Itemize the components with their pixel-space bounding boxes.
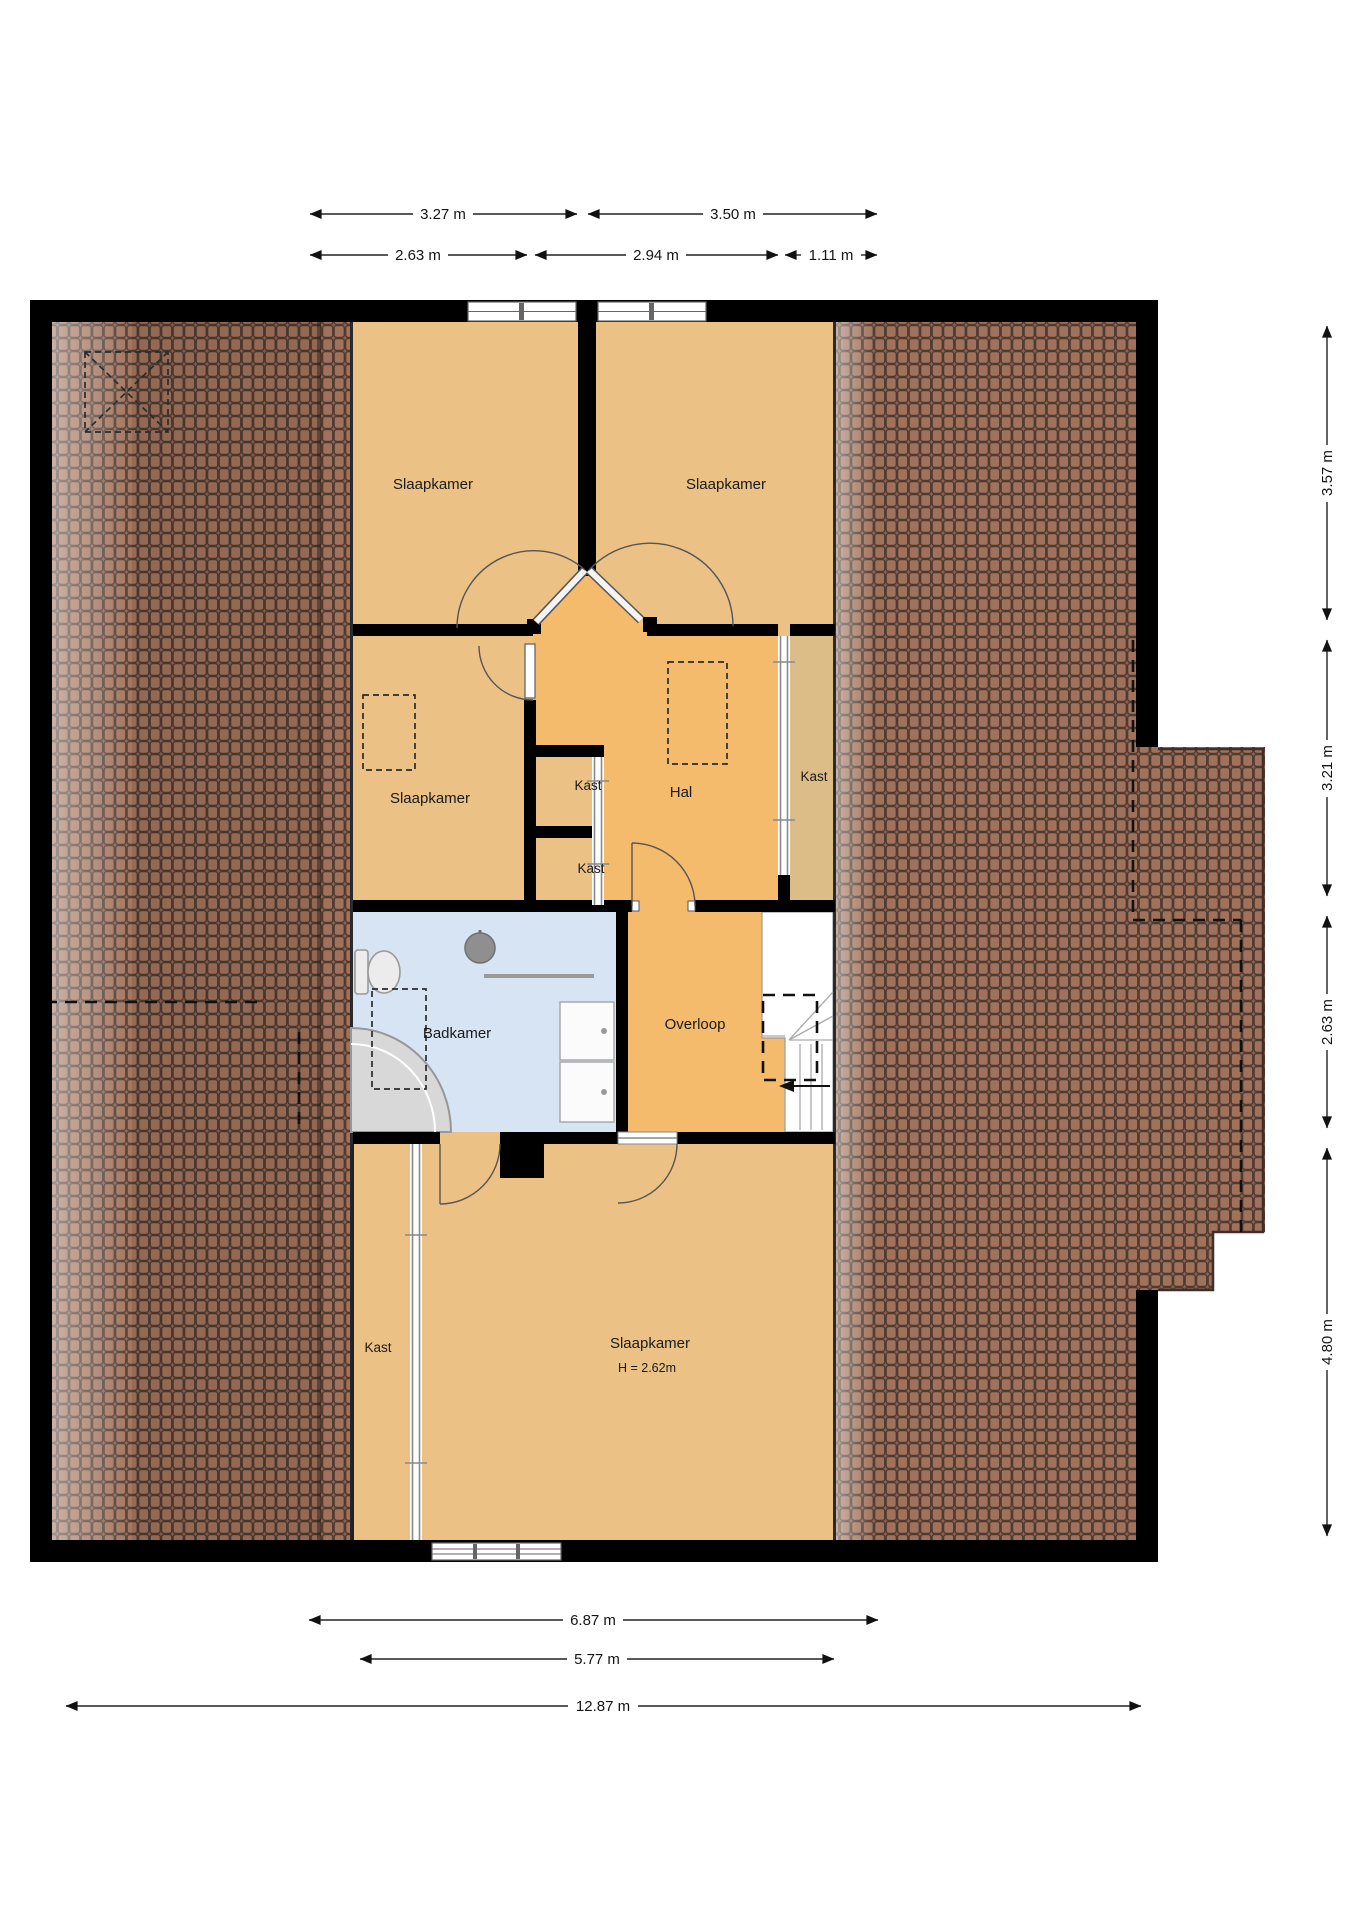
dim-label-3-27: 3.27 m [420,206,466,223]
right-roof-highlight [836,322,876,1540]
dim-top-row2-seg1: 2.63 m [310,247,527,264]
window-top-1 [468,302,576,321]
room-label-closet-lower: Kast [577,861,604,876]
dim-top-row1-seg2: 3.50 m [588,206,877,223]
wall-b-left [353,900,632,912]
wall-c-left [353,1132,440,1144]
outer-wall-top [30,300,1158,322]
dim-label-2-63-top: 2.63 m [395,247,441,264]
dim-top-row2-seg3: 1.11 m [785,247,877,264]
room-label-bedroom-bottom: Slaapkamer [610,1335,690,1352]
closet-top-wall [524,745,604,757]
wall-a-left [353,624,533,636]
left-roof-shade [132,322,317,1540]
room-label-hall: Hal [670,784,693,801]
room-note-ceiling-height: H = 2.62m [618,1361,676,1375]
right-roof-notch [1213,1232,1267,1292]
dim-label-4-80: 4.80 m [1319,1319,1336,1365]
dim-bottom-seg3: 12.87 m [66,1698,1141,1715]
bathroom-landing-wall [616,912,628,1132]
outer-wall-bottom [30,1540,1158,1562]
wall-c-stub [500,1132,544,1178]
room-label-closet-right: Kast [800,769,827,784]
dim-right-seg1: 3.57 m [1319,326,1336,620]
faucet-2-icon [601,1089,607,1095]
wall-a-right [647,624,778,636]
dim-right-seg2: 3.21 m [1319,640,1336,896]
right-roof-tiles [836,322,1136,1540]
left-roof-highlight [52,322,137,1540]
right-roof-bumpout-tiles [1136,747,1265,1290]
wall-b-right [695,900,835,912]
dim-label-2-94: 2.94 m [633,247,679,264]
dim-label-3-50: 3.50 m [710,206,756,223]
room-label-landing: Overloop [665,1016,726,1033]
closet-bottom-left-wall [351,1144,354,1540]
room-label-bathroom: Badkamer [423,1025,491,1042]
closet-right-fill [790,636,835,900]
floor-plan-drawing: Slaapkamer Slaapkamer Slaapkamer Kast Ka… [0,0,1358,1920]
outer-wall-left [30,300,52,1562]
closet-divider-wall [536,826,592,838]
dim-label-1-11: 1.11 m [809,247,854,264]
wall-a-far-right [790,624,835,636]
left-roof [45,322,351,1540]
dim-right-seg3: 2.63 m [1319,916,1336,1128]
dim-label-5-77: 5.77 m [574,1651,620,1668]
dim-top-row1-seg1: 3.27 m [310,206,577,223]
hall-glazing-end-stub [778,875,790,905]
shower-head-icon [465,933,495,963]
dim-label-3-21: 3.21 m [1319,745,1336,791]
dim-top-row2-seg2: 2.94 m [535,247,778,264]
dim-right-seg4: 4.80 m [1319,1148,1336,1536]
toilet-tank-icon [355,950,368,994]
faucet-1-icon [601,1028,607,1034]
right-roof [836,322,1267,1540]
window-top-2 [598,302,706,321]
dim-label-6-87: 6.87 m [570,1612,616,1629]
dim-bottom-seg1: 6.87 m [309,1612,878,1629]
room-label-bedroom-top-left: Slaapkamer [393,476,473,493]
room-label-bedroom-middle: Slaapkamer [390,790,470,807]
room-label-bedroom-top-right: Slaapkamer [686,476,766,493]
wall-c-right [677,1132,835,1144]
left-roof-seam [317,322,321,1540]
window-wall-c [618,1132,677,1144]
dim-label-3-57: 3.57 m [1319,450,1336,496]
dim-label-12-87: 12.87 m [576,1698,630,1715]
bedroom-divider-wall [578,322,596,565]
closet-left-wall [524,700,536,905]
window-bottom [432,1543,561,1560]
door-hinge-block-right [643,617,657,632]
room-label-closet-upper: Kast [574,778,601,793]
floor-plan-page: Slaapkamer Slaapkamer Slaapkamer Kast Ka… [0,0,1358,1920]
outer-wall-right-lower [1136,1290,1158,1562]
outer-wall-right-upper [1136,300,1158,747]
toilet-bowl-icon [368,951,400,993]
dim-label-2-63-right: 2.63 m [1319,999,1336,1045]
right-room-roof-edge [833,322,836,1540]
dim-bottom-seg2: 5.77 m [360,1651,834,1668]
room-label-closet-bottom: Kast [364,1340,391,1355]
